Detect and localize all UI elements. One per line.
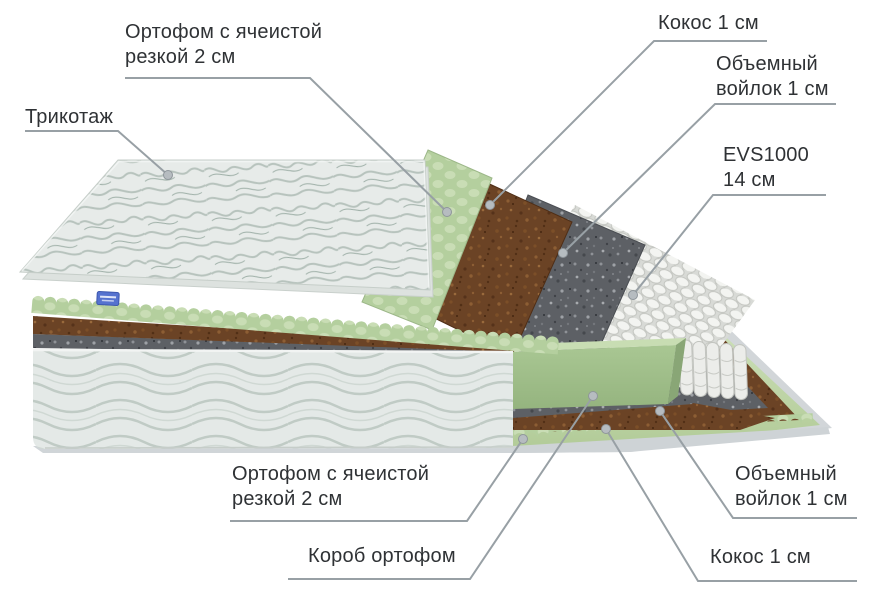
- leader-dot-kokos-bottom: [602, 425, 611, 434]
- leader-dot-kokos-top: [486, 201, 495, 210]
- leader-line-kokos-top: [490, 41, 767, 205]
- leader-dot-voylok-bottom: [656, 407, 665, 416]
- leader-dot-evs1000: [629, 291, 638, 300]
- layer-front-quilt-face: [33, 350, 513, 449]
- leader-dot-ortofom-top: [443, 208, 452, 217]
- spring-pockets: [679, 338, 748, 402]
- leader-dot-ortofom-bottom: [519, 435, 528, 444]
- mattress-illustration: [0, 0, 874, 599]
- leader-line-kokos-bottom: [606, 429, 857, 581]
- leader-dot-voylok-top: [559, 249, 568, 258]
- leader-dot-korob: [589, 392, 598, 401]
- layer-top-cover: [20, 160, 433, 297]
- leader-dot-trikotazh: [164, 171, 173, 180]
- mattress-layers-diagram: ТрикотажОртофом с ячеистойрезкой 2 смКок…: [0, 0, 874, 599]
- brand-tag: [97, 291, 120, 305]
